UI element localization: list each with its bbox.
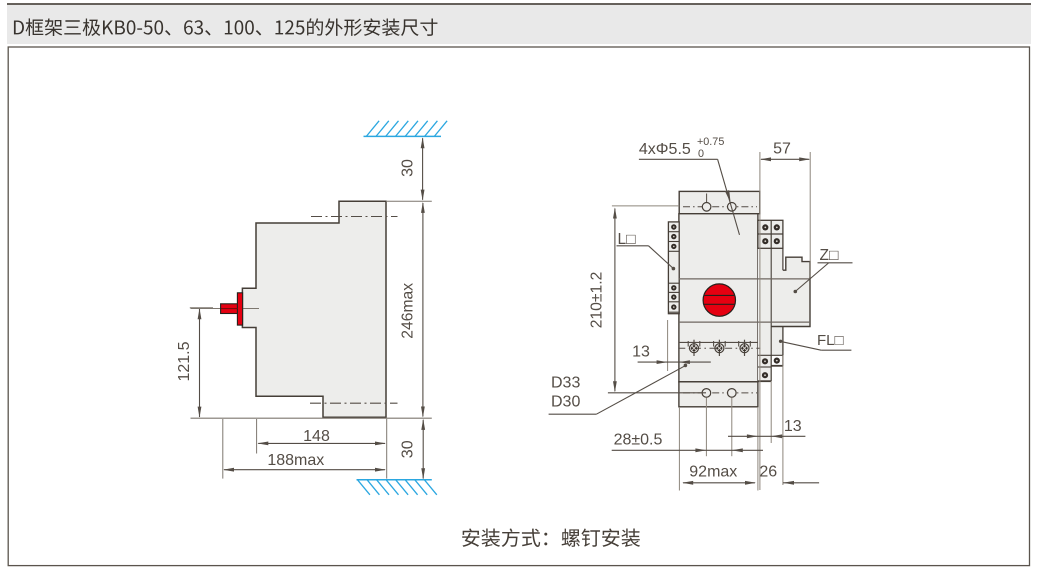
svg-text:13: 13: [632, 344, 650, 361]
svg-text:28±0.5: 28±0.5: [614, 431, 663, 448]
svg-text:D30: D30: [551, 393, 580, 410]
svg-text:210±1.2: 210±1.2: [589, 272, 606, 329]
svg-text:13: 13: [784, 418, 802, 435]
svg-text:188max: 188max: [267, 452, 324, 469]
svg-text:246max: 246max: [399, 283, 416, 339]
svg-text:4xΦ5.5: 4xΦ5.5: [639, 141, 691, 158]
svg-text:30: 30: [399, 440, 416, 458]
svg-text:D33: D33: [551, 374, 580, 391]
svg-text:26: 26: [759, 464, 777, 481]
svg-text:FL□: FL□: [817, 332, 844, 349]
svg-text:0: 0: [698, 148, 704, 160]
svg-text:+0.75: +0.75: [697, 136, 724, 148]
svg-text:121.5: 121.5: [176, 341, 193, 381]
svg-text:30: 30: [399, 159, 416, 177]
svg-text:92max: 92max: [689, 464, 737, 481]
svg-text:Z□: Z□: [820, 247, 839, 264]
svg-text:57: 57: [773, 140, 791, 157]
svg-text:148: 148: [303, 428, 330, 445]
